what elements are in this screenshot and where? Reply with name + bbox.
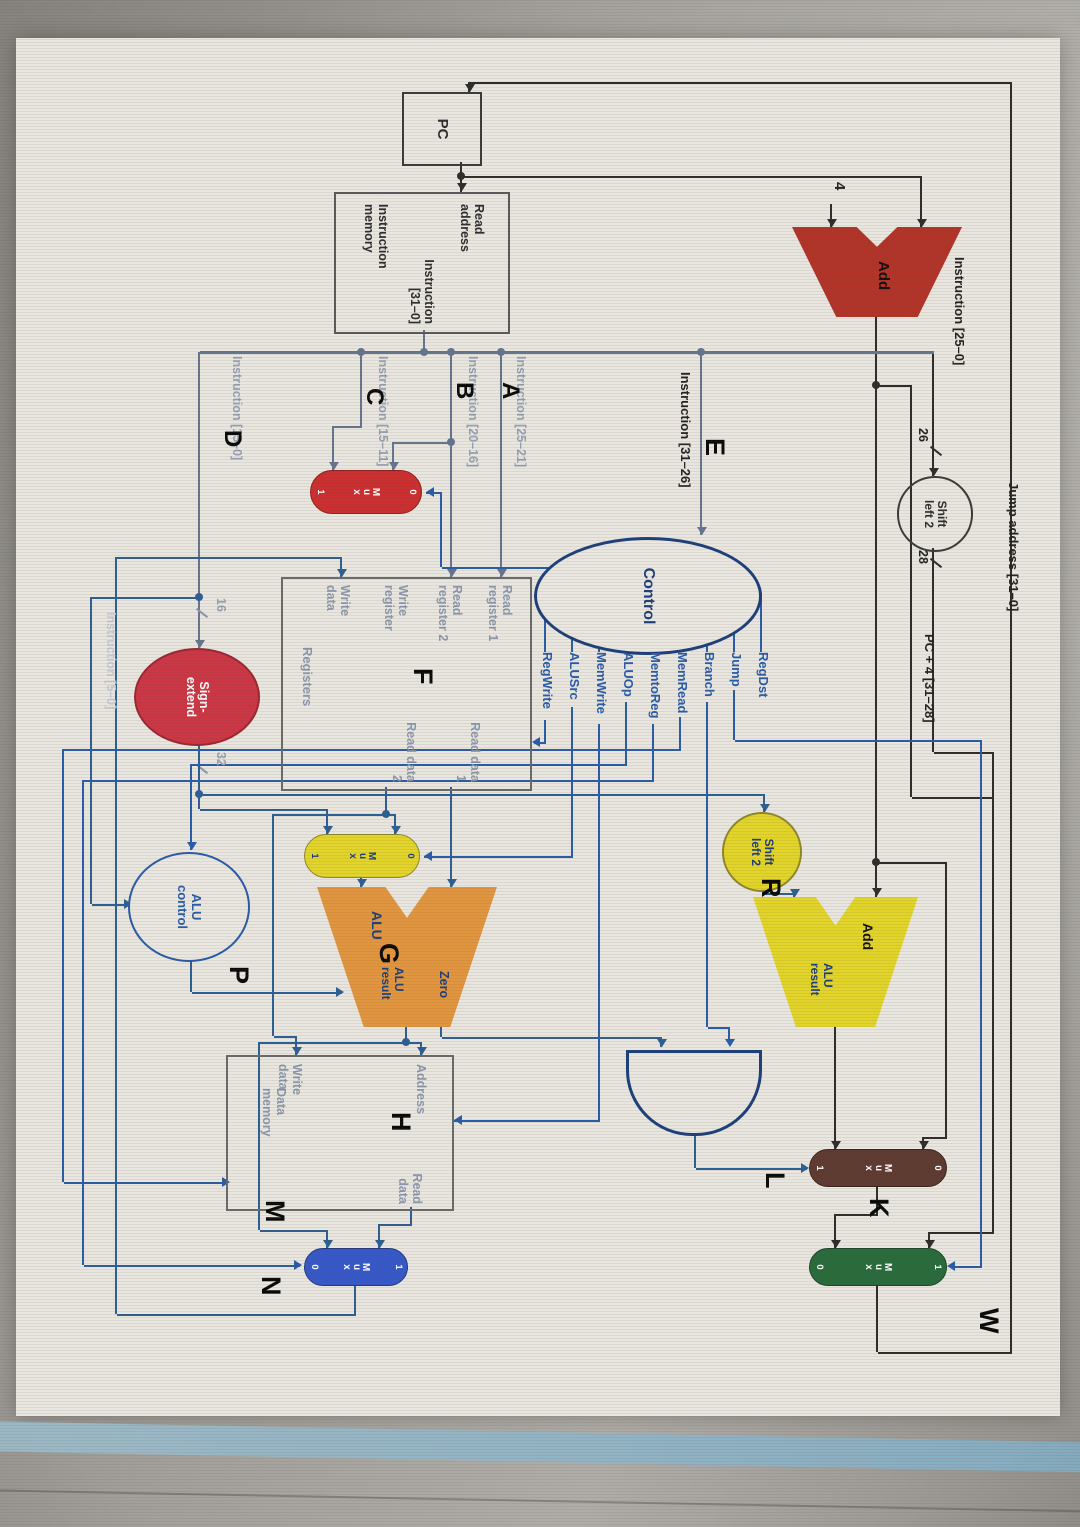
- wire-arrowhead: [697, 527, 707, 535]
- control-label: Control: [639, 568, 657, 625]
- marker-f: F: [407, 668, 438, 685]
- shift-left-2-jump-label: Shift left 2: [922, 494, 948, 534]
- regdst-mux-input-0: 0: [407, 489, 417, 494]
- bottom-blue-band: [0, 1421, 1080, 1472]
- wire-segment: [200, 794, 765, 796]
- wire-segment: [706, 702, 708, 1027]
- wire-segment: [424, 856, 573, 858]
- wire-segment: [735, 740, 982, 742]
- wire-segment: [930, 1232, 994, 1234]
- registers-title: Registers: [300, 647, 314, 706]
- wire-segment: [952, 1266, 982, 1268]
- alusrc-mux-label: Mux: [348, 851, 377, 862]
- imem-instruction-out-port: Instruction [31–0]: [408, 236, 436, 324]
- branch-mux: 0 Mux 1: [809, 1149, 947, 1187]
- write-register-port: Write register: [382, 585, 410, 653]
- wire-arrowhead: [801, 1163, 809, 1173]
- wire-junction-dot: [357, 348, 365, 356]
- wire-segment: [598, 724, 600, 1120]
- wire-arrowhead: [447, 569, 457, 577]
- sign-extend-unit: Sign-extend: [134, 648, 260, 746]
- wire-arrowhead: [447, 879, 457, 887]
- wire-segment: [117, 557, 342, 559]
- wire-segment: [652, 724, 654, 780]
- wire-arrowhead: [391, 826, 401, 834]
- wire-segment: [200, 809, 328, 811]
- alusrc-mux: 0 Mux 1: [304, 834, 420, 878]
- wire-segment: [1010, 82, 1012, 1352]
- width-16-label: 16: [214, 598, 228, 612]
- memtoreg-mux: 1 Mux 0: [304, 1248, 408, 1286]
- width-26-label: 26: [916, 428, 930, 442]
- instruction-15-11-label: Instruction [15–11]: [376, 356, 390, 466]
- wire-segment: [200, 351, 934, 354]
- marker-g: G: [373, 943, 404, 964]
- wire-segment: [470, 82, 1012, 84]
- imem-title: Instruction memory: [362, 204, 390, 284]
- signal-memread: MemRead: [675, 652, 689, 713]
- instruction-20-16-label: Instruction [20–16]: [466, 356, 480, 467]
- dmem-address-port: Address: [414, 1064, 428, 1114]
- wire-segment: [117, 1314, 356, 1316]
- branch-add-result-label: ALU result: [808, 963, 834, 1015]
- photo-of-screen: PC Read address Instruction [31–0] Instr…: [0, 0, 1080, 1527]
- wire-arrowhead: [329, 462, 339, 470]
- width-32-label: 32: [214, 752, 228, 766]
- alu-zero-label: Zero: [437, 971, 451, 998]
- wire-arrowhead: [336, 987, 344, 997]
- marker-a: A: [496, 382, 524, 399]
- wire-segment: [92, 597, 200, 599]
- instruction-25-0-label: Instruction [25–0]: [952, 257, 966, 365]
- data-memory: Address Read data Write data Data memory: [226, 1055, 454, 1211]
- wire-segment: [274, 1036, 297, 1038]
- wire-arrowhead: [831, 1141, 841, 1149]
- write-data-port: Write data: [324, 585, 352, 635]
- wire-segment: [440, 1027, 442, 1037]
- wire-arrowhead: [389, 462, 399, 470]
- wire-segment: [354, 1286, 356, 1314]
- marker-l: L: [759, 1172, 790, 1189]
- wire-arrowhead: [831, 1240, 841, 1248]
- instruction-memory: Read address Instruction [31–0] Instruct…: [334, 192, 510, 334]
- wire-segment: [733, 690, 735, 740]
- wire-arrowhead: [292, 1047, 302, 1055]
- imem-read-address-port: Read address: [458, 204, 486, 262]
- wire-segment: [877, 385, 912, 387]
- wire-segment: [980, 740, 982, 1266]
- wire-segment: [272, 814, 274, 1036]
- control-unit: Control: [534, 537, 762, 655]
- wire-segment: [394, 442, 452, 444]
- wire-segment: [274, 814, 387, 816]
- signal-aluop: ALUOp: [621, 652, 635, 697]
- wire-segment: [708, 1027, 730, 1029]
- alu-unit: Zero ALU result ALU: [317, 887, 497, 1027]
- wire-segment: [260, 1230, 328, 1232]
- wire-arrowhead: [917, 219, 927, 227]
- wire-segment: [910, 385, 912, 797]
- wire-arrowhead: [919, 1141, 929, 1149]
- jump-mux-input-0: 0: [814, 1264, 824, 1269]
- marker-r: R: [755, 878, 786, 898]
- dmem-read-data-port: Read data: [396, 1156, 424, 1204]
- wire-segment: [62, 749, 64, 1182]
- wire-segment: [834, 1027, 836, 1149]
- wire-arrowhead: [417, 1047, 427, 1055]
- wire-segment: [84, 1265, 300, 1267]
- regdst-mux-input-1: 1: [315, 489, 325, 494]
- wire-arrowhead: [790, 889, 800, 897]
- read-data-1-port: Read data 1: [454, 720, 482, 782]
- wire-segment: [198, 352, 200, 648]
- branch-mux-label: Mux: [864, 1163, 893, 1174]
- jump-mux-label: Mux: [864, 1262, 893, 1273]
- signal-memtoreg: MemtoReg: [648, 652, 662, 718]
- marker-d: D: [218, 430, 246, 447]
- wire-junction-dot: [447, 348, 455, 356]
- wire-arrowhead: [465, 84, 475, 92]
- wire-arrowhead: [872, 888, 882, 896]
- alusrc-mux-input-0: 0: [405, 853, 415, 858]
- wire-segment: [82, 780, 84, 1265]
- instruction-5-0-label: Instruction [5–0]: [104, 612, 118, 709]
- alu-control-label: ALU control: [175, 879, 203, 935]
- marker-n: N: [255, 1276, 286, 1296]
- signal-alusrc: ALUSrc: [567, 652, 581, 700]
- wire-segment: [877, 862, 947, 864]
- wire-arrowhead: [337, 569, 347, 577]
- wire-segment: [696, 1168, 807, 1170]
- wire-junction-dot: [697, 348, 705, 356]
- signal-jump: Jump: [729, 652, 743, 687]
- wire-arrowhead: [532, 737, 540, 747]
- alu-control-unit: ALU control: [128, 852, 250, 962]
- wire-segment: [442, 1037, 662, 1039]
- marker-w: W: [973, 1308, 1004, 1333]
- wire-arrowhead: [323, 826, 333, 834]
- pc-label: PC: [435, 119, 449, 140]
- pc-register: PC: [402, 92, 482, 166]
- instruction-25-21-label: Instruction [25–21]: [514, 356, 528, 467]
- wire-arrowhead: [947, 1261, 955, 1271]
- wire-arrowhead: [929, 468, 939, 476]
- wire-segment: [945, 862, 947, 1137]
- wire-arrowhead: [454, 1115, 462, 1125]
- wire-segment: [198, 743, 200, 809]
- signal-regdst: RegDst: [756, 652, 770, 698]
- wire-arrowhead: [187, 842, 197, 850]
- memtoreg-mux-input-1: 1: [393, 1264, 403, 1269]
- wire-junction-dot: [420, 348, 428, 356]
- wire-segment: [442, 567, 553, 569]
- marker-e: E: [699, 438, 730, 456]
- instruction-31-26-label: Instruction [31–26]: [678, 372, 692, 488]
- wire-segment: [694, 1133, 696, 1168]
- pc-add-label: Add: [876, 261, 890, 290]
- marker-c: C: [360, 388, 388, 405]
- marker-m: M: [259, 1200, 290, 1223]
- wire-arrowhead: [375, 1240, 385, 1248]
- wire-segment: [462, 176, 922, 178]
- wire-segment: [876, 1286, 878, 1352]
- signal-regwrite: RegWrite: [540, 652, 554, 709]
- wire-arrowhead: [497, 569, 507, 577]
- wire-segment: [64, 1182, 228, 1184]
- wire-arrowhead: [925, 1240, 935, 1248]
- jump-mux: 1 Mux 0: [809, 1248, 947, 1286]
- wire-segment: [679, 717, 681, 749]
- wire-arrowhead: [294, 1260, 302, 1270]
- wire-segment: [440, 492, 442, 567]
- wire-segment: [544, 720, 546, 742]
- wire-segment: [878, 1352, 1012, 1354]
- signal-branch: Branch: [702, 652, 716, 697]
- alusrc-mux-input-1: 1: [309, 853, 319, 858]
- branch-mux-input-0: 0: [932, 1165, 942, 1170]
- branch-and-gate: [626, 1050, 762, 1136]
- wire-arrowhead: [760, 804, 770, 812]
- read-register-1-port: Read register 1: [486, 585, 514, 653]
- marker-b: B: [450, 382, 478, 399]
- wire-arrowhead: [657, 1039, 667, 1047]
- wire-arrowhead: [426, 487, 434, 497]
- wire-segment: [625, 702, 627, 764]
- shift-left-2-jump: Shift left 2: [897, 476, 973, 552]
- marker-h: H: [385, 1112, 416, 1132]
- read-data-2-port: Read data 2: [390, 720, 418, 782]
- branch-add-label: Add: [860, 923, 876, 950]
- wire-segment: [932, 352, 934, 476]
- wire-arrowhead: [424, 851, 432, 861]
- datapath-diagram: PC Read address Instruction [31–0] Instr…: [32, 52, 1042, 1392]
- wire-segment: [924, 1137, 947, 1139]
- wire-segment: [450, 787, 452, 887]
- wire-junction-dot: [497, 348, 505, 356]
- signal-memwrite: MemWrite: [594, 652, 608, 714]
- read-register-2-port: Read register 2: [436, 585, 464, 653]
- wire-arrowhead: [357, 879, 367, 887]
- const-4: 4: [832, 182, 846, 190]
- jump-address-label: Jump address [31–0]: [1006, 482, 1020, 611]
- alu-label: ALU: [369, 911, 385, 940]
- branch-mux-input-1: 1: [814, 1165, 824, 1170]
- width-28-label: 28: [916, 550, 930, 564]
- wire-arrowhead: [827, 219, 837, 227]
- wire-segment: [192, 992, 342, 994]
- jump-mux-input-1: 1: [932, 1264, 942, 1269]
- shift-left-2-branch-label: Shift left 2: [749, 832, 775, 872]
- regdst-mux: 0 Mux 1: [310, 470, 422, 514]
- wire-segment: [334, 426, 362, 428]
- marker-k: K: [863, 1198, 894, 1218]
- wire-arrowhead: [195, 640, 205, 648]
- wire-segment: [992, 752, 994, 1232]
- wire-segment: [571, 707, 573, 856]
- memtoreg-mux-label: Mux: [342, 1262, 371, 1273]
- wire-segment: [934, 752, 994, 754]
- pc-plus-4-label: PC + 4 [31–28]: [922, 634, 936, 723]
- regdst-mux-label: Mux: [352, 487, 381, 498]
- wire-segment: [260, 1042, 407, 1044]
- marker-p: P: [223, 966, 254, 984]
- dmem-title: Data memory: [260, 1088, 288, 1150]
- wire-segment: [380, 1224, 412, 1226]
- wire-segment: [454, 1120, 600, 1122]
- wire-segment: [875, 317, 877, 897]
- branch-add-unit: Add ALU result: [753, 897, 918, 1027]
- sign-extend-label: Sign-extend: [184, 671, 210, 723]
- bottom-hairline: [0, 1489, 1080, 1512]
- wire-arrowhead: [323, 1240, 333, 1248]
- alu-result-label: ALU result: [379, 967, 405, 1017]
- memtoreg-mux-input-0: 0: [309, 1264, 319, 1269]
- wire-segment: [190, 958, 192, 992]
- wire-arrowhead: [457, 183, 467, 191]
- wire-arrowhead: [725, 1039, 735, 1047]
- wire-segment: [190, 764, 192, 850]
- pc-add-unit: Add: [792, 227, 962, 317]
